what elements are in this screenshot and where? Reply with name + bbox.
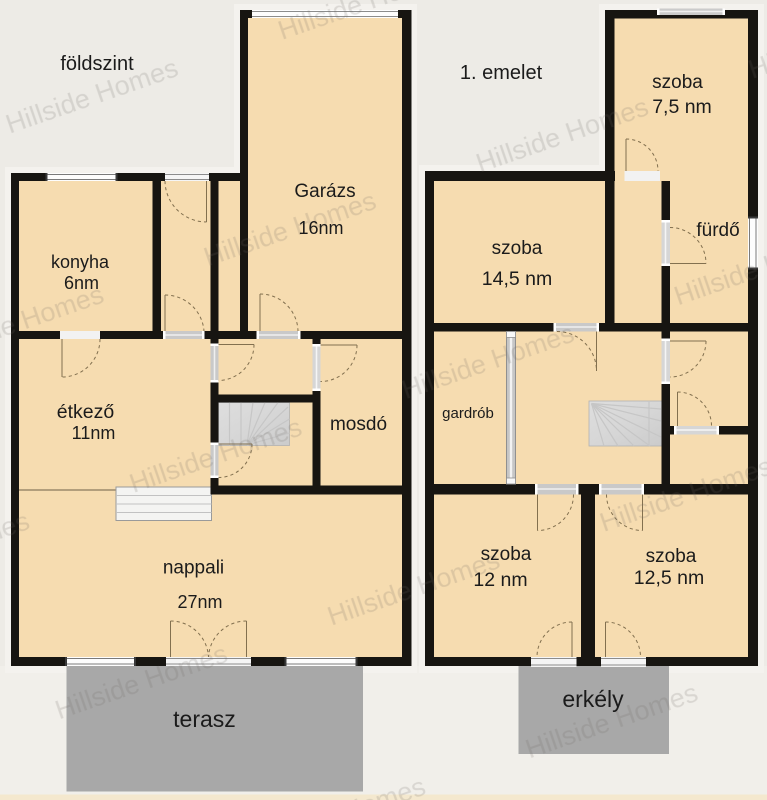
svg-text:6nm: 6nm (64, 273, 99, 293)
svg-text:12,5 nm: 12,5 nm (634, 567, 704, 589)
svg-text:7,5 nm: 7,5 nm (652, 96, 712, 118)
svg-text:erkély: erkély (562, 686, 624, 712)
svg-text:gardrób: gardrób (442, 405, 494, 422)
svg-text:terasz: terasz (173, 706, 236, 732)
svg-text:27nm: 27nm (177, 592, 222, 612)
svg-text:fürdő: fürdő (696, 220, 739, 241)
svg-text:földszint: földszint (60, 53, 134, 75)
svg-text:16nm: 16nm (298, 218, 343, 238)
svg-text:konyha: konyha (51, 252, 110, 272)
svg-text:12 nm: 12 nm (473, 569, 527, 591)
svg-text:1. emelet: 1. emelet (460, 62, 543, 84)
svg-text:mosdó: mosdó (330, 414, 387, 435)
svg-text:szoba: szoba (652, 72, 703, 93)
svg-text:14,5 nm: 14,5 nm (482, 268, 552, 290)
svg-text:szoba: szoba (492, 238, 543, 259)
svg-text:szoba: szoba (646, 546, 697, 567)
svg-text:Garázs: Garázs (294, 181, 355, 202)
svg-text:nappali: nappali (163, 558, 224, 579)
svg-text:étkező: étkező (57, 401, 115, 423)
svg-text:11nm: 11nm (72, 423, 116, 443)
svg-text:szoba: szoba (481, 544, 532, 565)
